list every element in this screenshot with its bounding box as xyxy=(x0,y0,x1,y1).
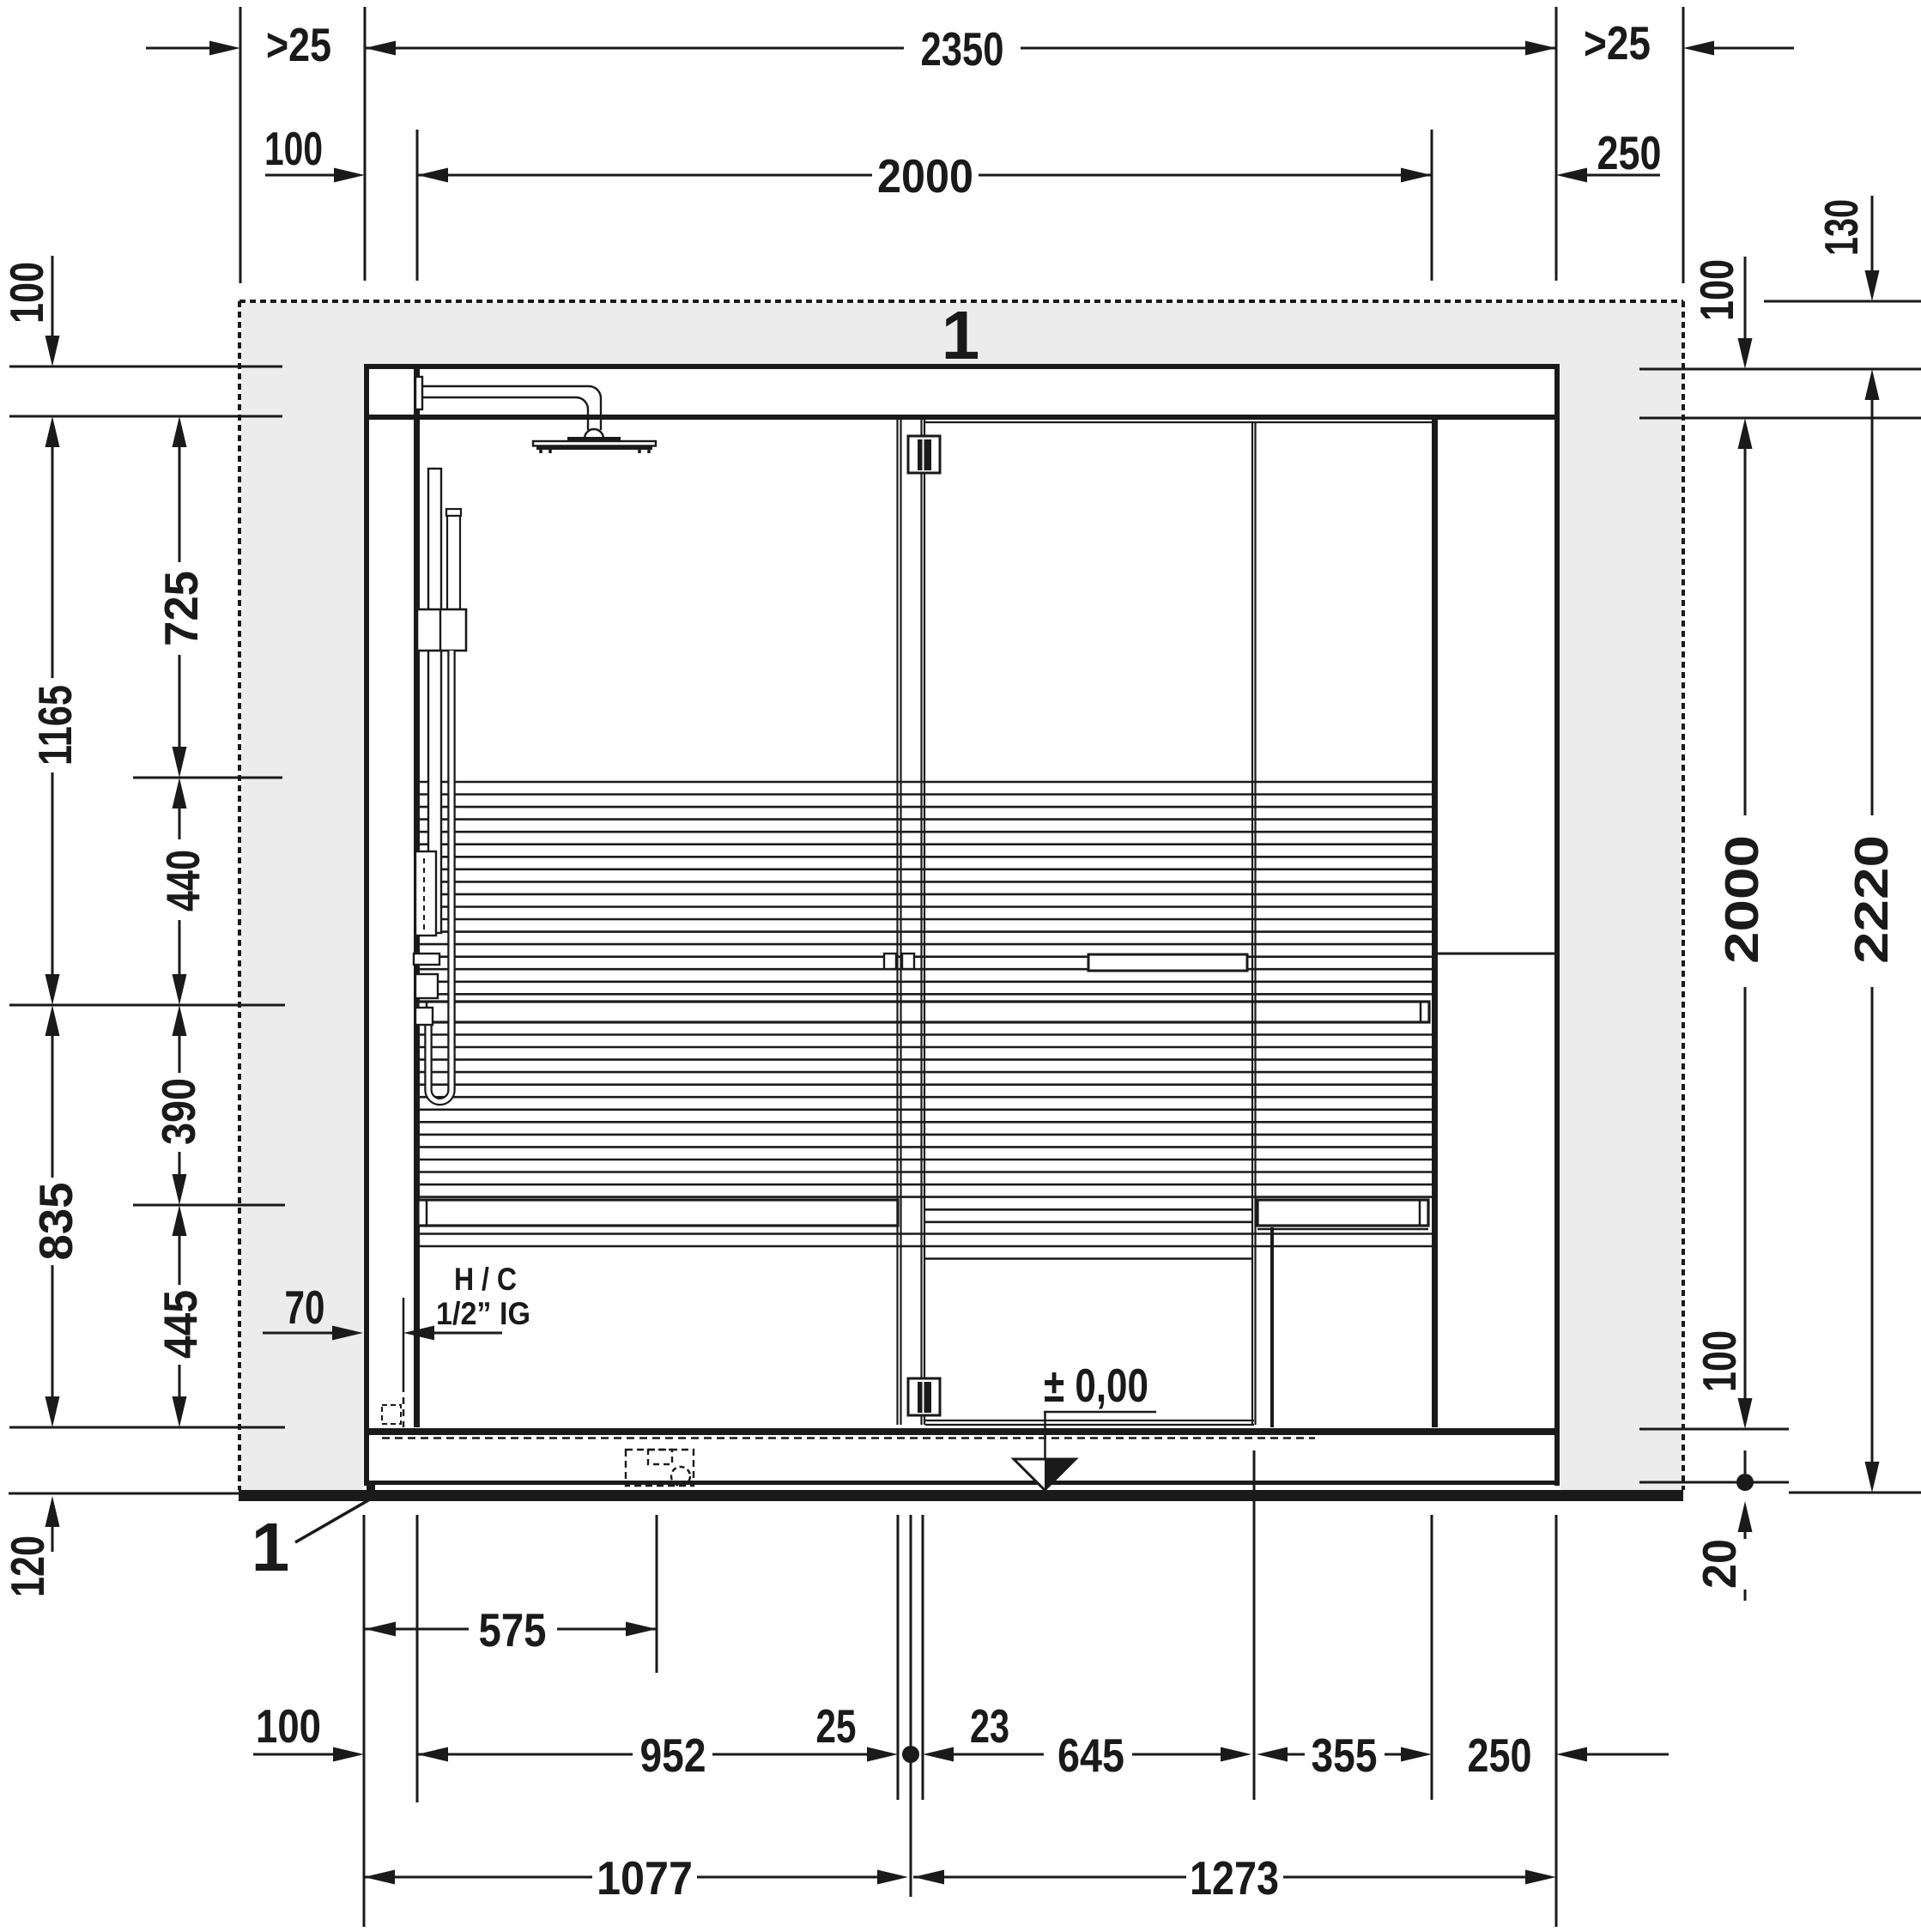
svg-text:25: 25 xyxy=(816,1699,857,1753)
svg-text:250: 250 xyxy=(1597,126,1662,179)
svg-text:100: 100 xyxy=(0,262,53,324)
svg-text:H / C: H / C xyxy=(454,1262,517,1297)
svg-text:1/2” IG: 1/2” IG xyxy=(436,1296,530,1331)
svg-text:100: 100 xyxy=(1690,259,1743,321)
svg-text:100: 100 xyxy=(256,1699,321,1753)
svg-text:445: 445 xyxy=(154,1290,207,1359)
svg-text:2220: 2220 xyxy=(1845,835,1898,964)
svg-text:390: 390 xyxy=(152,1078,205,1145)
svg-text:575: 575 xyxy=(479,1603,547,1656)
svg-text:1273: 1273 xyxy=(1190,1851,1279,1905)
svg-text:23: 23 xyxy=(970,1699,1009,1753)
svg-text:1077: 1077 xyxy=(597,1851,693,1905)
svg-text:355: 355 xyxy=(1312,1729,1378,1782)
svg-text:250: 250 xyxy=(1468,1729,1532,1782)
svg-text:725: 725 xyxy=(155,571,208,646)
svg-text:100: 100 xyxy=(1693,1330,1746,1392)
svg-text:835: 835 xyxy=(29,1183,82,1261)
svg-text:440: 440 xyxy=(156,850,209,911)
svg-text:70: 70 xyxy=(285,1281,325,1334)
svg-text:20: 20 xyxy=(1693,1539,1746,1589)
svg-text:1165: 1165 xyxy=(28,685,82,766)
svg-text:1: 1 xyxy=(942,297,980,373)
svg-text:1: 1 xyxy=(251,1509,290,1585)
svg-text:± 0,00: ± 0,00 xyxy=(1044,1359,1148,1412)
svg-text:2350: 2350 xyxy=(921,22,1004,76)
svg-text:>25: >25 xyxy=(266,18,331,71)
svg-text:2000: 2000 xyxy=(877,149,973,203)
svg-text:100: 100 xyxy=(264,122,323,175)
svg-text:>25: >25 xyxy=(1584,16,1651,70)
svg-text:120: 120 xyxy=(1,1535,54,1597)
svg-text:2000: 2000 xyxy=(1715,835,1768,964)
svg-text:952: 952 xyxy=(640,1729,706,1782)
svg-text:130: 130 xyxy=(1815,199,1868,256)
svg-text:645: 645 xyxy=(1057,1729,1124,1782)
